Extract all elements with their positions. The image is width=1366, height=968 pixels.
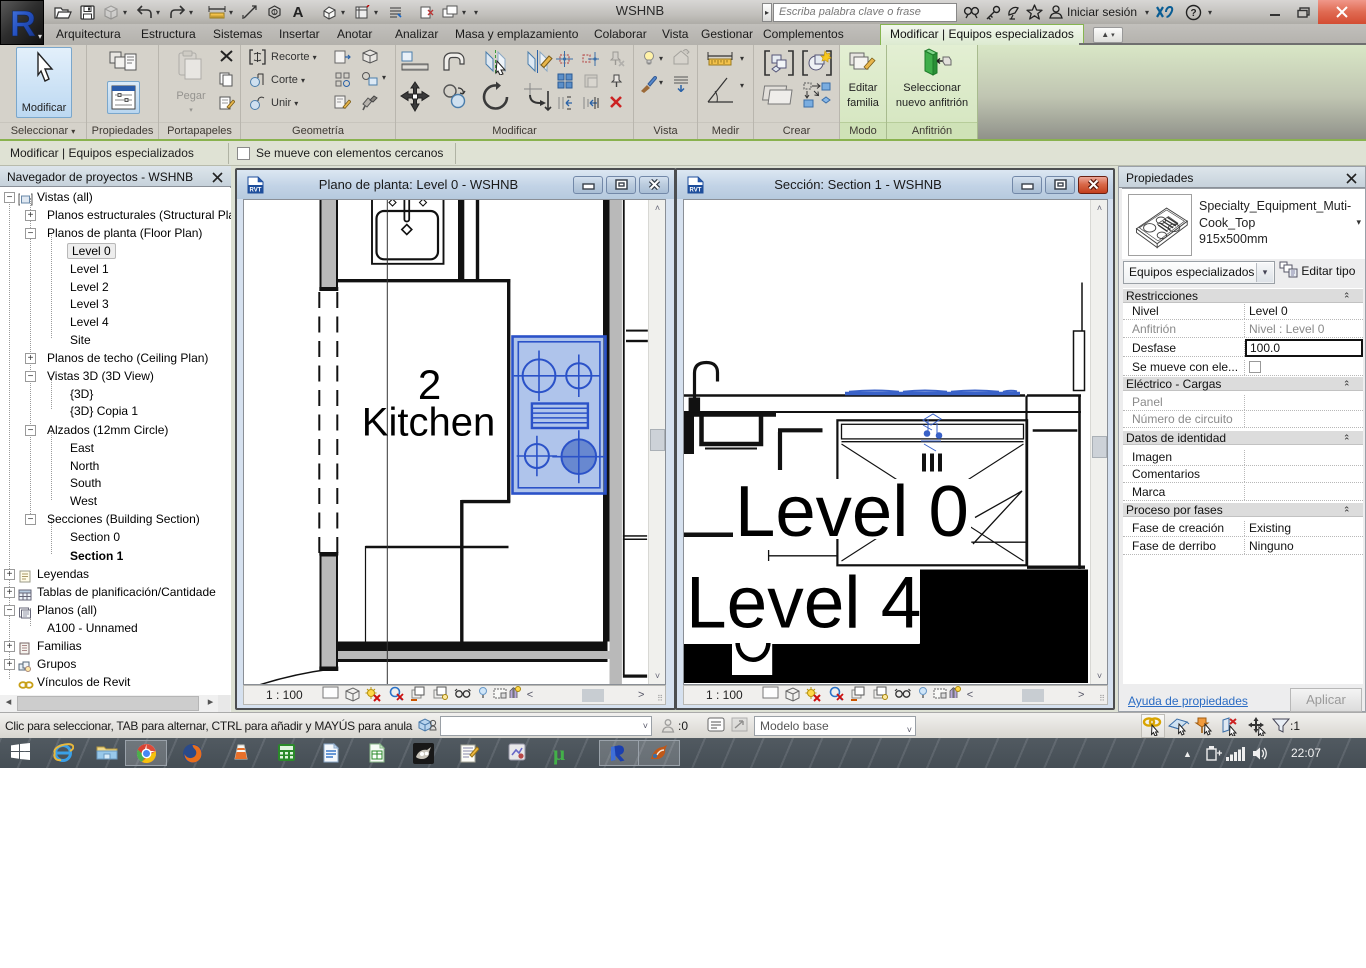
- svg-text:R: R: [10, 3, 36, 43]
- svg-text:Kitchen: Kitchen: [362, 401, 495, 445]
- svg-text:Level 0: Level 0: [735, 471, 969, 552]
- svg-text:RVT: RVT: [690, 187, 702, 193]
- svg-text:RVT: RVT: [250, 187, 262, 193]
- svg-text:?: ?: [1190, 8, 1196, 19]
- svg-text:Level 4: Level 4: [686, 563, 921, 644]
